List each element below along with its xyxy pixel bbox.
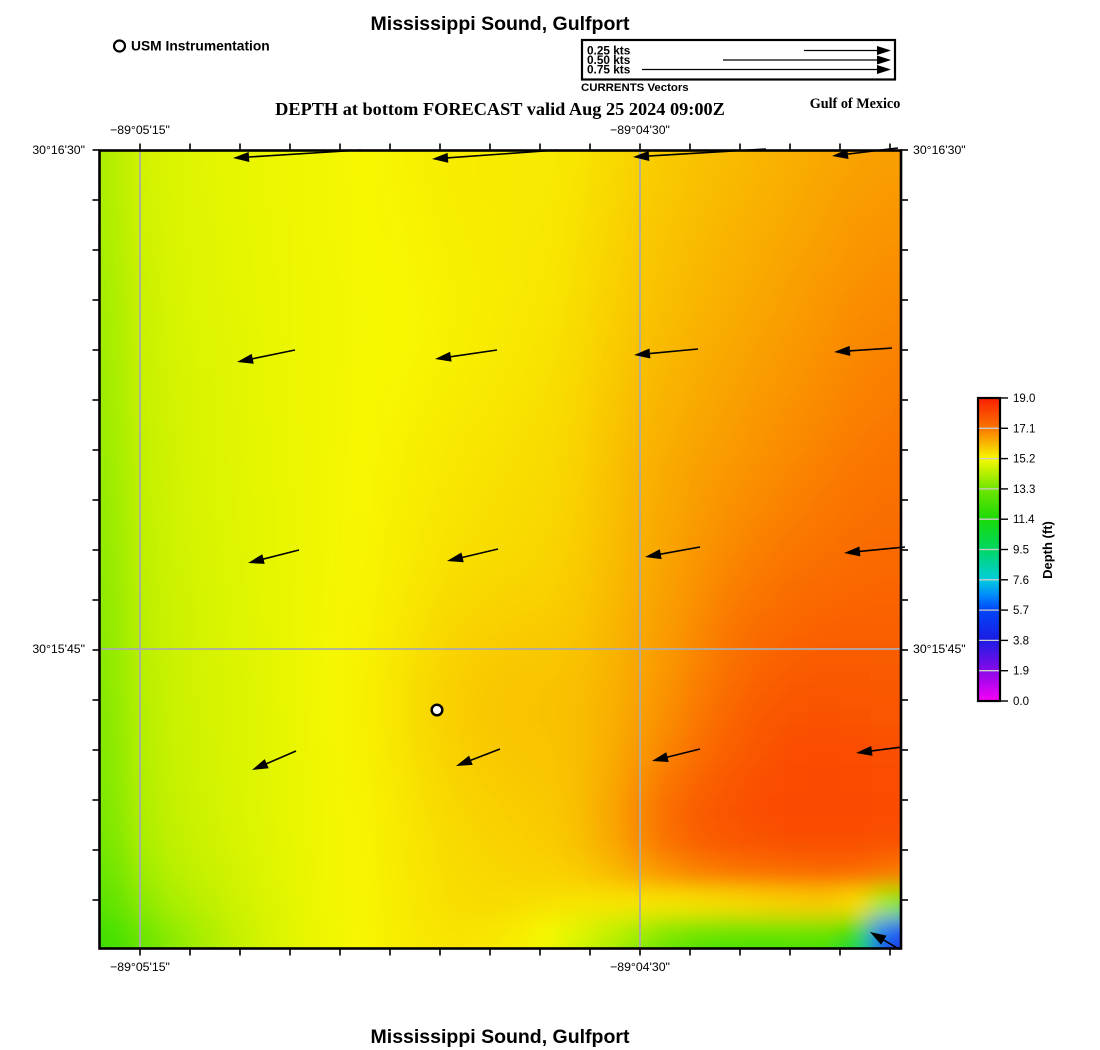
svg-text:−89°04'30": −89°04'30"	[610, 123, 670, 137]
svg-text:5.7: 5.7	[1013, 605, 1029, 617]
svg-text:15.2: 15.2	[1013, 454, 1035, 466]
svg-text:Mississippi Sound, Gulfport: Mississippi Sound, Gulfport	[371, 13, 630, 35]
svg-text:17.1: 17.1	[1013, 423, 1035, 435]
svg-text:CURRENTS Vectors: CURRENTS Vectors	[581, 82, 689, 94]
svg-text:−89°05'15": −89°05'15"	[110, 123, 170, 137]
svg-text:30°16'30": 30°16'30"	[32, 143, 85, 157]
svg-text:30°15'45": 30°15'45"	[32, 642, 85, 656]
svg-text:30°15'45": 30°15'45"	[913, 642, 966, 656]
svg-text:9.5: 9.5	[1013, 545, 1029, 557]
svg-text:3.8: 3.8	[1013, 635, 1029, 647]
svg-text:Mississippi Sound, Gulfport: Mississippi Sound, Gulfport	[371, 1026, 630, 1048]
svg-text:0.0: 0.0	[1013, 696, 1029, 708]
svg-text:30°16'30": 30°16'30"	[913, 143, 966, 157]
svg-text:19.0: 19.0	[1013, 393, 1035, 405]
svg-text:−89°04'30": −89°04'30"	[610, 960, 670, 974]
svg-text:0.75 kts: 0.75 kts	[587, 63, 631, 77]
svg-text:−89°05'15": −89°05'15"	[110, 960, 170, 974]
svg-text:USM Instrumentation: USM Instrumentation	[131, 39, 270, 54]
svg-text:11.4: 11.4	[1013, 514, 1035, 526]
svg-text:1.9: 1.9	[1013, 666, 1029, 678]
svg-text:DEPTH at bottom FORECAST valid: DEPTH at bottom FORECAST valid Aug 25 20…	[275, 99, 725, 119]
svg-text:13.3: 13.3	[1013, 484, 1035, 496]
svg-text:Depth (ft): Depth (ft)	[1040, 521, 1055, 579]
svg-text:7.6: 7.6	[1013, 575, 1029, 587]
svg-text:Gulf of Mexico: Gulf of Mexico	[810, 96, 901, 112]
